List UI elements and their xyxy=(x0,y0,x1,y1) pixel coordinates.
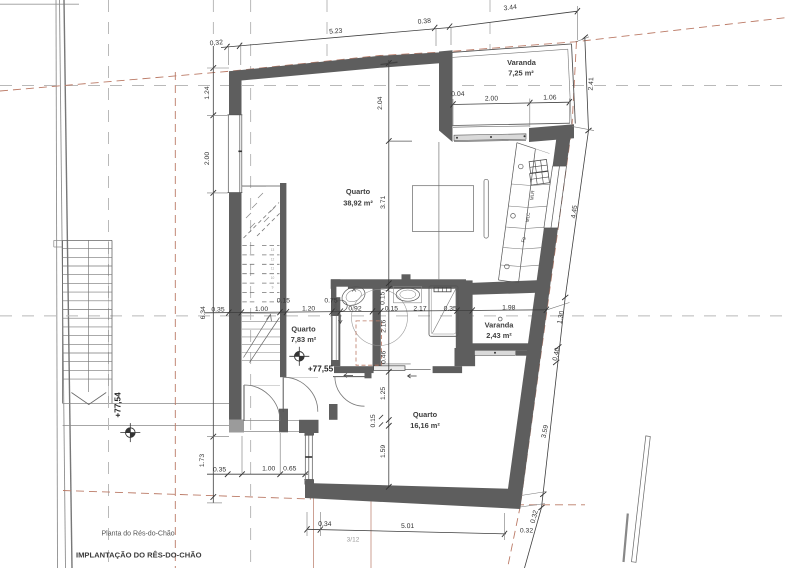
svg-text:38,92 m²: 38,92 m² xyxy=(343,199,373,208)
svg-text:Varanda: Varanda xyxy=(507,58,537,67)
svg-text:2,43 m²: 2,43 m² xyxy=(486,331,512,340)
svg-text:0.15: 0.15 xyxy=(370,414,377,427)
svg-text:0.15: 0.15 xyxy=(380,291,387,304)
svg-text:0.35: 0.35 xyxy=(444,305,457,312)
svg-text:1.59: 1.59 xyxy=(380,445,387,458)
svg-text:16,16 m²: 16,16 m² xyxy=(410,421,440,430)
svg-text:0.75: 0.75 xyxy=(324,298,337,305)
svg-text:1.73: 1.73 xyxy=(199,454,206,467)
svg-text:0.15: 0.15 xyxy=(277,297,290,304)
svg-text:13: 13 xyxy=(271,248,275,252)
svg-text:2.00: 2.00 xyxy=(204,152,211,165)
svg-text:7,83 m²: 7,83 m² xyxy=(291,335,317,344)
svg-text:+77,55: +77,55 xyxy=(308,364,334,373)
svg-text:1.98: 1.98 xyxy=(502,305,515,312)
svg-text:0.15: 0.15 xyxy=(385,305,398,312)
svg-text:2.16: 2.16 xyxy=(380,319,387,332)
svg-text:2.00: 2.00 xyxy=(485,95,499,102)
svg-text:0.92: 0.92 xyxy=(348,305,361,312)
svg-text:3/12: 3/12 xyxy=(347,537,360,544)
svg-text:9: 9 xyxy=(272,286,274,290)
svg-text:0.34: 0.34 xyxy=(318,521,332,528)
svg-text:12: 12 xyxy=(271,257,275,261)
svg-text:Planta do Rés-do-Chão: Planta do Rés-do-Chão xyxy=(102,531,175,538)
svg-text:0.46: 0.46 xyxy=(380,350,387,363)
svg-text:Quarto: Quarto xyxy=(291,325,316,334)
svg-text:0.32: 0.32 xyxy=(520,528,533,535)
svg-text:11: 11 xyxy=(271,267,275,271)
svg-text:1.06: 1.06 xyxy=(543,94,557,101)
svg-text:2.04: 2.04 xyxy=(377,96,384,109)
svg-text:0.38: 0.38 xyxy=(417,18,431,26)
svg-text:+77,54: +77,54 xyxy=(114,392,123,418)
svg-text:2.17: 2.17 xyxy=(413,305,426,312)
svg-text:5.01: 5.01 xyxy=(401,523,415,530)
svg-text:0.35: 0.35 xyxy=(213,466,226,473)
svg-text:7,25 m²: 7,25 m² xyxy=(508,68,534,77)
svg-text:IMPLANTAÇÃO DO RÊS-DO-CHÃO: IMPLANTAÇÃO DO RÊS-DO-CHÃO xyxy=(76,551,202,560)
svg-text:1.00: 1.00 xyxy=(262,466,275,473)
svg-text:Fg: Fg xyxy=(521,236,527,242)
svg-text:Quarto: Quarto xyxy=(346,187,371,196)
svg-text:0.35: 0.35 xyxy=(211,306,224,313)
svg-text:Varanda: Varanda xyxy=(485,320,515,329)
svg-text:2.41: 2.41 xyxy=(588,77,596,91)
svg-text:5.23: 5.23 xyxy=(329,28,343,36)
svg-text:3.71: 3.71 xyxy=(380,195,387,208)
svg-text:0.04: 0.04 xyxy=(451,91,465,98)
svg-text:1.24: 1.24 xyxy=(204,86,211,99)
svg-text:0.65: 0.65 xyxy=(283,465,296,472)
svg-text:1.00: 1.00 xyxy=(255,306,268,313)
svg-text:1.25: 1.25 xyxy=(380,387,387,400)
svg-text:Quarto: Quarto xyxy=(413,410,438,419)
svg-text:0,32: 0,32 xyxy=(209,39,223,47)
svg-text:10: 10 xyxy=(271,276,275,280)
svg-text:1.20: 1.20 xyxy=(302,306,315,313)
